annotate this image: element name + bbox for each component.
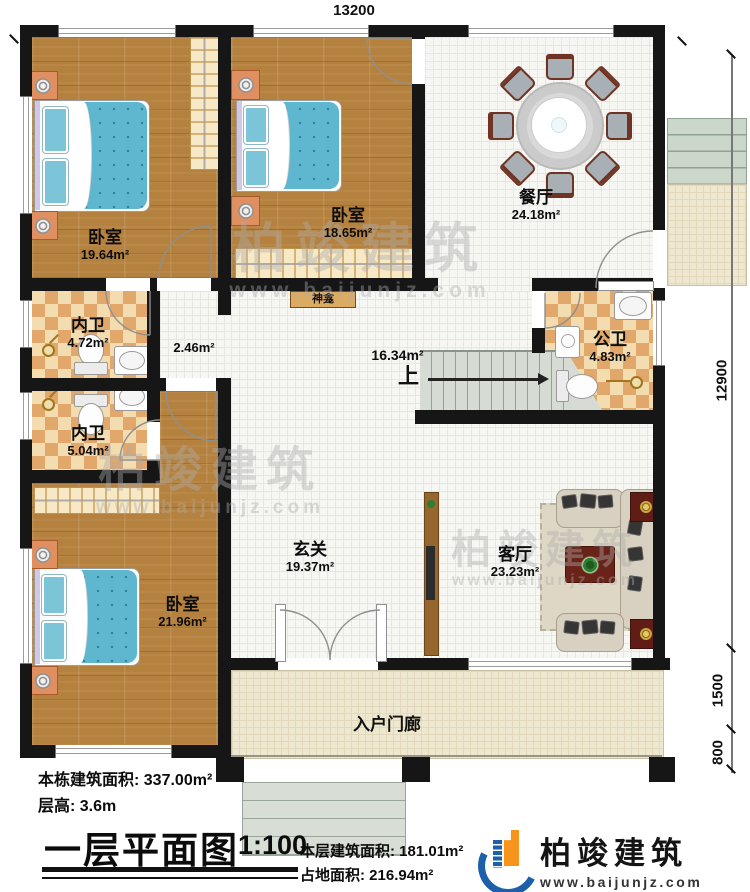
room-label-bedroom3: 卧室 21.96m² bbox=[130, 595, 235, 629]
room-name: 餐厅 bbox=[486, 188, 586, 208]
room-name: 公卫 bbox=[568, 330, 652, 350]
wall bbox=[20, 212, 32, 300]
bed-pillow bbox=[43, 107, 68, 153]
company-logo: 柏竣建筑 www.baijunjz.com bbox=[478, 826, 746, 888]
room-label-public-bath: 公卫 4.83m² bbox=[568, 330, 652, 364]
dim-top: 13200 bbox=[316, 2, 392, 19]
plan-title: 一层平面图 bbox=[44, 820, 239, 874]
lamp-icon bbox=[237, 76, 255, 94]
lamp-icon bbox=[34, 77, 52, 95]
logo-website: www.baijunjz.com bbox=[540, 874, 702, 890]
room-name: 卧室 bbox=[55, 228, 155, 248]
window bbox=[20, 392, 32, 440]
window bbox=[20, 548, 32, 664]
dim-steps: 800 bbox=[710, 731, 727, 775]
sofa-pillow bbox=[581, 619, 598, 635]
plant-icon bbox=[580, 555, 600, 575]
bed-pillow bbox=[244, 106, 268, 144]
wall bbox=[20, 662, 32, 757]
wall bbox=[412, 84, 425, 278]
title-underline bbox=[42, 867, 298, 872]
coffee-table bbox=[565, 546, 615, 583]
bed-headboard bbox=[35, 569, 40, 664]
dim-porch: 1500 bbox=[710, 667, 727, 715]
sink bbox=[119, 351, 145, 370]
logo-company-name: 柏竣建筑 bbox=[540, 828, 702, 873]
lazy-susan bbox=[551, 117, 567, 133]
stairs-up-label: 上 bbox=[398, 360, 422, 390]
room-area: 5.04m² bbox=[32, 444, 144, 459]
footprint-area: 占地面积: 216.94m² bbox=[300, 864, 433, 885]
room-label-ensuite2: 内卫 5.04m² bbox=[32, 424, 144, 458]
title-underline-thin bbox=[42, 877, 298, 879]
wall bbox=[218, 378, 231, 757]
bed-pillow bbox=[43, 159, 68, 205]
dim-right: 12900 bbox=[714, 353, 731, 409]
bed bbox=[34, 568, 140, 666]
wall bbox=[231, 278, 412, 291]
room-label-dining: 餐厅 24.18m² bbox=[486, 188, 586, 222]
bed-sheet bbox=[65, 102, 92, 209]
wall bbox=[150, 278, 157, 291]
room-name: 卧室 bbox=[300, 206, 396, 226]
room-label-bedroom2: 卧室 18.65m² bbox=[300, 206, 396, 240]
window bbox=[58, 25, 176, 37]
room-area: 18.65m² bbox=[300, 226, 396, 241]
window bbox=[468, 25, 614, 37]
stairs-arrow-icon bbox=[538, 373, 549, 385]
nightstand bbox=[231, 70, 260, 100]
dim-tick bbox=[677, 36, 687, 46]
wall bbox=[218, 25, 231, 315]
door-opening bbox=[278, 658, 378, 670]
wall bbox=[653, 288, 665, 300]
room-area: 4.72m² bbox=[32, 336, 144, 351]
corridor-area-label: 2.46m² bbox=[156, 340, 232, 355]
wall bbox=[630, 658, 670, 670]
sofa-pillow bbox=[599, 620, 615, 634]
wall bbox=[20, 470, 160, 483]
dining-chair bbox=[606, 112, 632, 140]
floor-drain-icon bbox=[630, 376, 643, 389]
wardrobe bbox=[34, 487, 160, 514]
window bbox=[653, 300, 665, 366]
side-porch-floor bbox=[667, 184, 747, 286]
bed-pillow bbox=[244, 149, 268, 187]
porch-column bbox=[649, 757, 675, 782]
room-label-living: 客厅 23.23m² bbox=[465, 545, 565, 579]
door-opening bbox=[412, 39, 425, 84]
building-total-area: 本栋建筑面积: 337.00m² bbox=[38, 766, 212, 790]
door-opening bbox=[157, 278, 211, 291]
room-name: 客厅 bbox=[465, 545, 565, 565]
wall bbox=[174, 25, 253, 37]
bed bbox=[236, 100, 342, 192]
wall bbox=[532, 328, 545, 353]
logo-building-blue-icon bbox=[493, 840, 502, 868]
room-area: 24.18m² bbox=[486, 208, 586, 223]
wall bbox=[211, 278, 218, 291]
bed-sheet bbox=[63, 570, 88, 663]
wall bbox=[20, 25, 32, 96]
shrine-label: 神龛 bbox=[312, 293, 334, 305]
wall bbox=[147, 291, 160, 422]
wall bbox=[412, 25, 425, 39]
wall bbox=[32, 278, 106, 291]
nightstand bbox=[231, 196, 260, 226]
shrine-table: 神龛 bbox=[290, 291, 356, 308]
sofa-pillow bbox=[579, 493, 596, 509]
room-label-foyer: 玄关 19.37m² bbox=[262, 540, 358, 574]
room-name: 内卫 bbox=[32, 316, 144, 336]
wall bbox=[415, 410, 665, 424]
wall bbox=[20, 745, 55, 758]
room-label-bedroom1: 卧室 19.64m² bbox=[55, 228, 155, 262]
sofa-pillow bbox=[597, 494, 613, 508]
sofa-pillow bbox=[561, 494, 578, 509]
bed bbox=[34, 100, 150, 212]
toilet-tank bbox=[74, 362, 108, 375]
lamp-icon bbox=[34, 672, 52, 690]
room-name: 内卫 bbox=[32, 424, 144, 444]
door-opening bbox=[106, 278, 150, 291]
door-opening bbox=[147, 422, 160, 460]
dining-chair bbox=[546, 54, 574, 80]
room-label-entry-porch: 入户门廊 bbox=[332, 710, 442, 735]
wall bbox=[653, 25, 665, 230]
tv bbox=[426, 546, 435, 600]
plant-icon bbox=[427, 500, 435, 508]
door-leaf bbox=[598, 281, 654, 291]
logo-text: 柏竣建筑 www.baijunjz.com bbox=[540, 828, 702, 890]
room-area: 23.23m² bbox=[465, 565, 565, 580]
bed-headboard bbox=[35, 101, 40, 210]
dim-tick bbox=[9, 34, 19, 44]
window bbox=[55, 745, 172, 758]
bed-pillow bbox=[42, 575, 66, 615]
room-area: 19.64m² bbox=[55, 248, 155, 263]
toilet bbox=[566, 374, 598, 399]
plan-scale: 1:100 bbox=[238, 830, 307, 861]
door-opening bbox=[166, 378, 216, 391]
table-lamp-icon bbox=[640, 628, 652, 640]
side-steps bbox=[667, 118, 747, 186]
room-label-ensuite1: 内卫 4.72m² bbox=[32, 316, 144, 350]
room-area: 19.37m² bbox=[262, 560, 358, 575]
wardrobe bbox=[190, 37, 219, 170]
wall bbox=[147, 460, 160, 470]
lamp-icon bbox=[34, 546, 52, 564]
entry-porch-floor bbox=[231, 670, 664, 759]
room-area: 21.96m² bbox=[130, 615, 235, 630]
bed-headboard bbox=[237, 101, 242, 190]
window bbox=[20, 300, 32, 348]
wall bbox=[653, 364, 665, 658]
lamp-icon bbox=[237, 202, 255, 220]
room-name: 玄关 bbox=[262, 540, 358, 560]
sofa-pillow bbox=[627, 575, 643, 592]
porch-column bbox=[216, 757, 244, 782]
sink bbox=[619, 296, 647, 316]
porch-edge-line bbox=[231, 755, 662, 757]
wardrobe bbox=[235, 248, 414, 280]
table-lamp-icon bbox=[640, 501, 652, 513]
bedroom3-entry-floor bbox=[160, 391, 218, 483]
bed-sheet bbox=[265, 102, 290, 189]
sofa-pillow bbox=[627, 546, 644, 562]
window bbox=[253, 25, 369, 37]
wall bbox=[231, 658, 278, 670]
door-leaf bbox=[376, 604, 387, 662]
door-opening bbox=[653, 230, 665, 288]
porch-column bbox=[402, 757, 430, 782]
lamp-icon bbox=[34, 217, 52, 235]
sofa-pillow bbox=[563, 620, 579, 635]
wall bbox=[20, 438, 32, 548]
floor-drain-line bbox=[606, 380, 630, 382]
window bbox=[468, 658, 632, 670]
floor-plan: 神龛 bbox=[0, 0, 750, 892]
room-area: 4.83m² bbox=[568, 350, 652, 365]
bed-pillow bbox=[42, 621, 66, 661]
dimension-line bbox=[731, 56, 733, 773]
door-leaf bbox=[275, 604, 286, 662]
floor-height: 层高: 3.6m bbox=[38, 792, 116, 816]
door-opening bbox=[532, 291, 545, 328]
wall bbox=[20, 378, 160, 391]
floor-area: 本层建筑面积: 181.01m² bbox=[300, 840, 463, 861]
wall bbox=[412, 278, 438, 291]
room-name: 卧室 bbox=[130, 595, 235, 615]
stairs-direction-line bbox=[428, 378, 540, 381]
wall bbox=[378, 658, 468, 670]
floor-drain-icon bbox=[42, 398, 55, 411]
window bbox=[20, 96, 32, 214]
dining-chair bbox=[488, 112, 514, 140]
